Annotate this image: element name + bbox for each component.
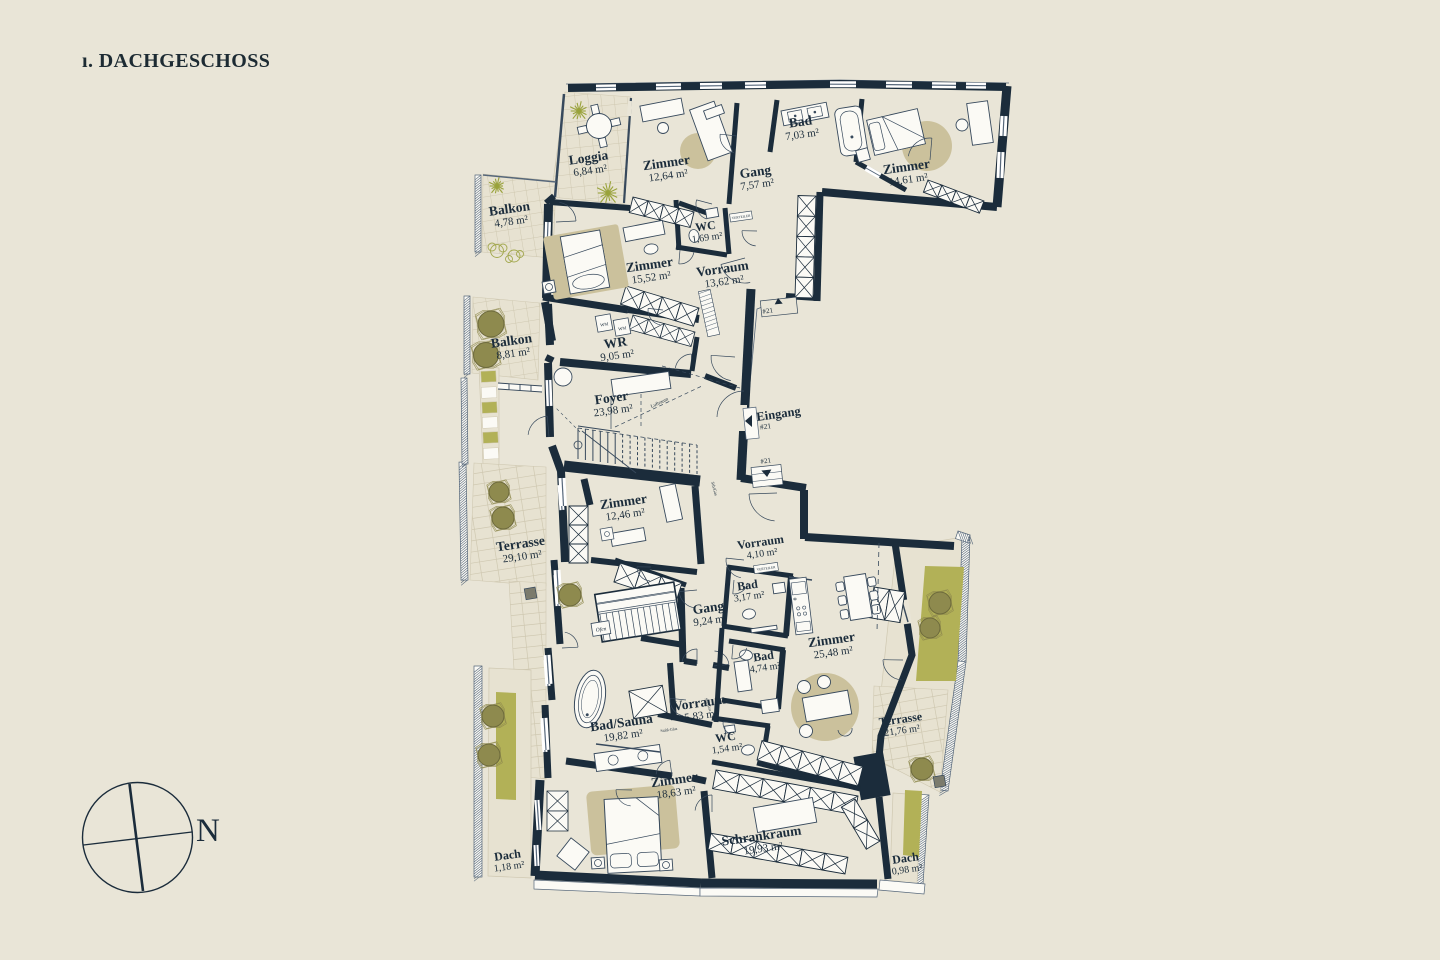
svg-text:N: N — [196, 813, 220, 849]
svg-text:ı. DACHGESCHOSS: ı. DACHGESCHOSS — [82, 50, 270, 72]
svg-text:#21: #21 — [760, 456, 772, 465]
svg-text:#21: #21 — [762, 306, 774, 315]
svg-text:*: * — [793, 596, 797, 605]
svg-text:#21: #21 — [759, 421, 772, 432]
